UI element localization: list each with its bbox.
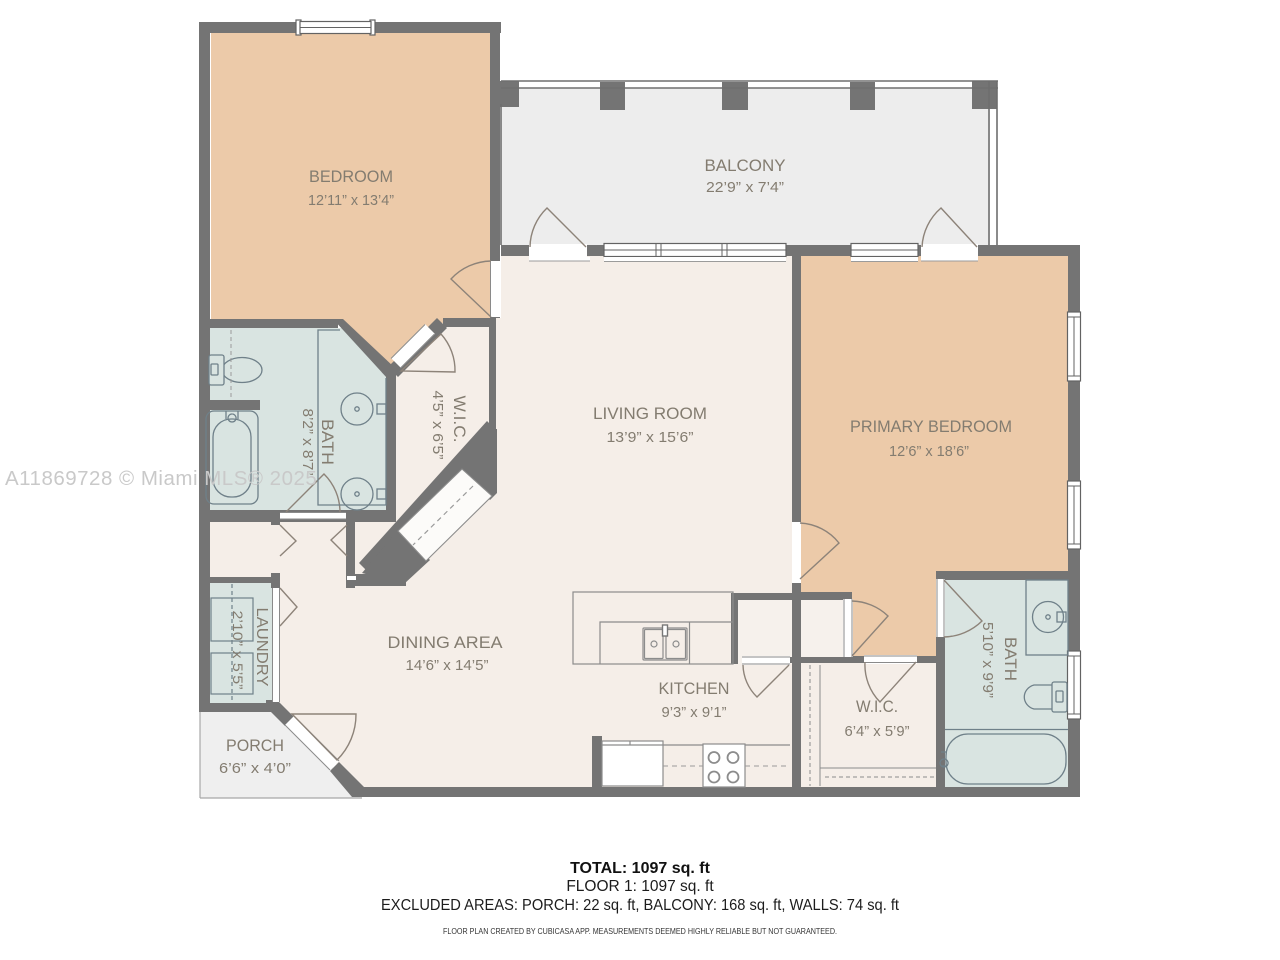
svg-text:LIVING ROOM: LIVING ROOM (593, 404, 707, 423)
svg-text:PORCH: PORCH (226, 736, 284, 755)
svg-text:TOTAL: 1097 sq. ft: TOTAL: 1097 sq. ft (570, 860, 711, 877)
svg-text:PRIMARY BEDROOM: PRIMARY BEDROOM (850, 417, 1012, 436)
svg-text:14’6” x 14’5”: 14’6” x 14’5” (406, 657, 489, 674)
svg-text:EXCLUDED AREAS: PORCH: 22 sq.: EXCLUDED AREAS: PORCH: 22 sq. ft, BALCON… (381, 897, 900, 914)
svg-text:2’10” x 5’5”: 2’10” x 5’5” (230, 611, 246, 690)
svg-text:6’6” x 4’0”: 6’6” x 4’0” (219, 760, 291, 777)
svg-text:22’9” x 7’4”: 22’9” x 7’4” (706, 179, 784, 196)
svg-text:W.I.C.: W.I.C. (450, 396, 469, 443)
svg-text:5’10” x 9’9”: 5’10” x 9’9” (979, 622, 996, 698)
svg-text:FLOOR PLAN CREATED BY CUBICASA: FLOOR PLAN CREATED BY CUBICASA APP. MEAS… (443, 926, 837, 936)
svg-text:A11869728 © Miami MLS® 2025: A11869728 © Miami MLS® 2025 (5, 467, 317, 490)
svg-text:BATH: BATH (1001, 637, 1020, 681)
svg-text:BATH: BATH (318, 419, 337, 465)
svg-text:BALCONY: BALCONY (705, 156, 786, 175)
svg-text:4’5” x 6’5”: 4’5” x 6’5” (429, 391, 446, 460)
svg-text:KITCHEN: KITCHEN (659, 679, 730, 698)
svg-text:12’11” x 13’4”: 12’11” x 13’4” (308, 192, 394, 209)
svg-text:W.I.C.: W.I.C. (856, 697, 898, 716)
svg-text:6’4” x 5’9”: 6’4” x 5’9” (845, 723, 910, 740)
svg-text:13’9” x 15’6”: 13’9” x 15’6” (607, 429, 694, 446)
svg-text:BEDROOM: BEDROOM (309, 167, 393, 186)
svg-text:LAUNDRY: LAUNDRY (253, 608, 270, 687)
svg-text:9’3” x 9’1”: 9’3” x 9’1” (662, 704, 727, 721)
svg-text:FLOOR 1: 1097 sq. ft: FLOOR 1: 1097 sq. ft (566, 878, 714, 895)
svg-text:DINING AREA: DINING AREA (388, 633, 504, 652)
svg-text:8’2” x 8’7”: 8’2” x 8’7” (299, 409, 316, 476)
svg-text:12’6” x 18’6”: 12’6” x 18’6” (889, 443, 969, 460)
